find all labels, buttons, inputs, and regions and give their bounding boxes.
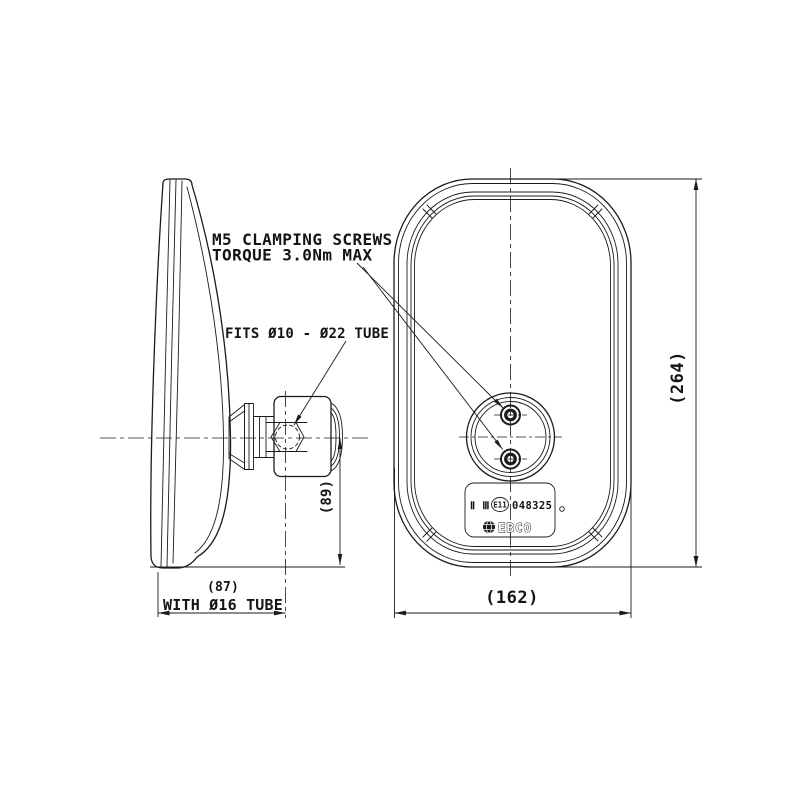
tube-fit-note: FITS Ø10 - Ø22 TUBE xyxy=(225,326,389,425)
clamp-block xyxy=(274,397,331,477)
approval-label: Ⅱ Ⅲ E11 048325 EBCO xyxy=(465,483,564,537)
clamp-end-cap xyxy=(331,403,343,471)
clamp-tube-recess xyxy=(266,423,307,452)
dim-depth-text: (87) xyxy=(207,580,239,595)
clamp-funnel xyxy=(229,405,245,470)
dim-height-text: (264) xyxy=(668,351,688,405)
clamp-ribbed-neck xyxy=(245,404,275,470)
approval-number: 048325 xyxy=(512,500,552,512)
clamp-assembly xyxy=(229,397,343,477)
dimension-center-to-bottom: (89) xyxy=(150,438,345,567)
dimension-depth: (87) WITH Ø16 TUBE xyxy=(158,572,286,617)
bezel-corner-clips xyxy=(423,205,602,541)
globe-icon xyxy=(483,521,495,533)
dim-center-bottom-text: (89) xyxy=(319,480,335,515)
dim-width-text: (162) xyxy=(485,588,539,608)
brand-logo-text: EBCO xyxy=(498,520,532,535)
drawing-canvas: Ⅱ Ⅲ E11 048325 EBCO (264) (162) xyxy=(0,0,800,800)
degree-mark xyxy=(560,507,565,512)
front-view: Ⅱ Ⅲ E11 048325 EBCO xyxy=(394,179,631,567)
technical-drawing: Ⅱ Ⅲ E11 048325 EBCO (264) (162) xyxy=(0,0,800,800)
clamping-note-line2: TORQUE 3.0Nm MAX xyxy=(212,246,373,265)
approval-class-marks: Ⅱ Ⅲ xyxy=(470,500,490,512)
e-mark-text: E11 xyxy=(493,501,507,510)
dimension-overall-width: (162) xyxy=(395,468,632,618)
tube-fit-note-text: FITS Ø10 - Ø22 TUBE xyxy=(225,326,389,342)
dim-depth-qualifier-text: WITH Ø16 TUBE xyxy=(163,596,283,614)
